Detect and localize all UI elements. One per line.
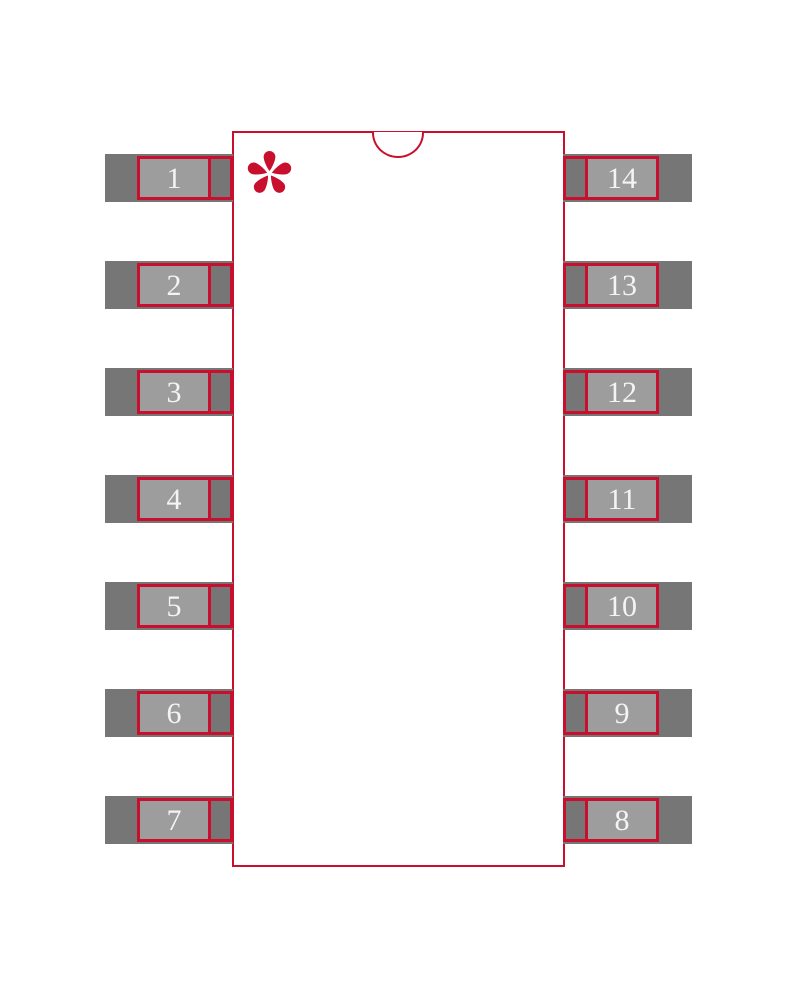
solder-pad: 11 bbox=[563, 475, 692, 523]
pin1-end-notch-icon bbox=[372, 132, 424, 158]
pin-number: 4 bbox=[167, 483, 182, 515]
lead-outline: 1 bbox=[137, 156, 233, 200]
pin-number: 2 bbox=[167, 269, 182, 301]
solder-pad: 13 bbox=[563, 261, 692, 309]
lead-outline: 9 bbox=[563, 691, 659, 735]
pin-number: 3 bbox=[167, 376, 182, 408]
lead-contact-area: 4 bbox=[140, 480, 208, 518]
lead-contact-area: 8 bbox=[588, 801, 656, 839]
lead-foot-segment bbox=[566, 266, 588, 304]
lead-foot-segment bbox=[566, 694, 588, 732]
solder-pad: 5 bbox=[105, 582, 233, 630]
lead-foot-segment bbox=[208, 480, 230, 518]
lead-outline: 5 bbox=[137, 584, 233, 628]
solder-pad: 2 bbox=[105, 261, 233, 309]
lead-foot-segment bbox=[208, 801, 230, 839]
solder-pad: 6 bbox=[105, 689, 233, 737]
pin-number: 12 bbox=[607, 376, 637, 408]
lead-foot-segment bbox=[208, 266, 230, 304]
lead-contact-area: 2 bbox=[140, 266, 208, 304]
pin-number: 7 bbox=[167, 804, 182, 836]
pin-number: 6 bbox=[167, 697, 182, 729]
lead-contact-area: 6 bbox=[140, 694, 208, 732]
footprint-canvas: 1 2 3 4 5 bbox=[0, 0, 797, 1000]
lead-contact-area: 13 bbox=[588, 266, 656, 304]
solder-pad: 3 bbox=[105, 368, 233, 416]
lead-foot-segment bbox=[566, 159, 588, 197]
lead-foot-segment bbox=[208, 159, 230, 197]
lead-outline: 6 bbox=[137, 691, 233, 735]
lead-foot-segment bbox=[208, 373, 230, 411]
lead-foot-segment bbox=[208, 587, 230, 625]
lead-foot-segment bbox=[566, 480, 588, 518]
pin-number: 5 bbox=[167, 590, 182, 622]
lead-contact-area: 5 bbox=[140, 587, 208, 625]
solder-pad: 12 bbox=[563, 368, 692, 416]
lead-contact-area: 9 bbox=[588, 694, 656, 732]
lead-contact-area: 7 bbox=[140, 801, 208, 839]
lead-foot-segment bbox=[566, 373, 588, 411]
lead-foot-segment bbox=[208, 694, 230, 732]
pin-number: 8 bbox=[615, 804, 630, 836]
pin-number: 9 bbox=[615, 697, 630, 729]
lead-outline: 14 bbox=[563, 156, 659, 200]
lead-contact-area: 1 bbox=[140, 159, 208, 197]
pin-number: 11 bbox=[608, 483, 637, 515]
solder-pad: 8 bbox=[563, 796, 692, 844]
pin-number: 1 bbox=[167, 162, 182, 194]
solder-pad: 14 bbox=[563, 154, 692, 202]
component-body-outline bbox=[232, 131, 565, 867]
pin-number: 10 bbox=[607, 590, 637, 622]
lead-outline: 11 bbox=[563, 477, 659, 521]
pin1-marker-asterisk-icon bbox=[245, 149, 294, 198]
solder-pad: 7 bbox=[105, 796, 233, 844]
solder-pad: 4 bbox=[105, 475, 233, 523]
lead-outline: 3 bbox=[137, 370, 233, 414]
lead-contact-area: 3 bbox=[140, 373, 208, 411]
lead-contact-area: 14 bbox=[588, 159, 656, 197]
solder-pad: 9 bbox=[563, 689, 692, 737]
lead-contact-area: 11 bbox=[588, 480, 656, 518]
lead-outline: 13 bbox=[563, 263, 659, 307]
lead-foot-segment bbox=[566, 587, 588, 625]
pin-number: 13 bbox=[607, 269, 637, 301]
lead-foot-segment bbox=[566, 801, 588, 839]
lead-outline: 12 bbox=[563, 370, 659, 414]
lead-outline: 10 bbox=[563, 584, 659, 628]
solder-pad: 10 bbox=[563, 582, 692, 630]
pin-number: 14 bbox=[607, 162, 637, 194]
lead-outline: 4 bbox=[137, 477, 233, 521]
lead-outline: 2 bbox=[137, 263, 233, 307]
lead-outline: 7 bbox=[137, 798, 233, 842]
lead-outline: 8 bbox=[563, 798, 659, 842]
lead-contact-area: 10 bbox=[588, 587, 656, 625]
lead-contact-area: 12 bbox=[588, 373, 656, 411]
solder-pad: 1 bbox=[105, 154, 233, 202]
